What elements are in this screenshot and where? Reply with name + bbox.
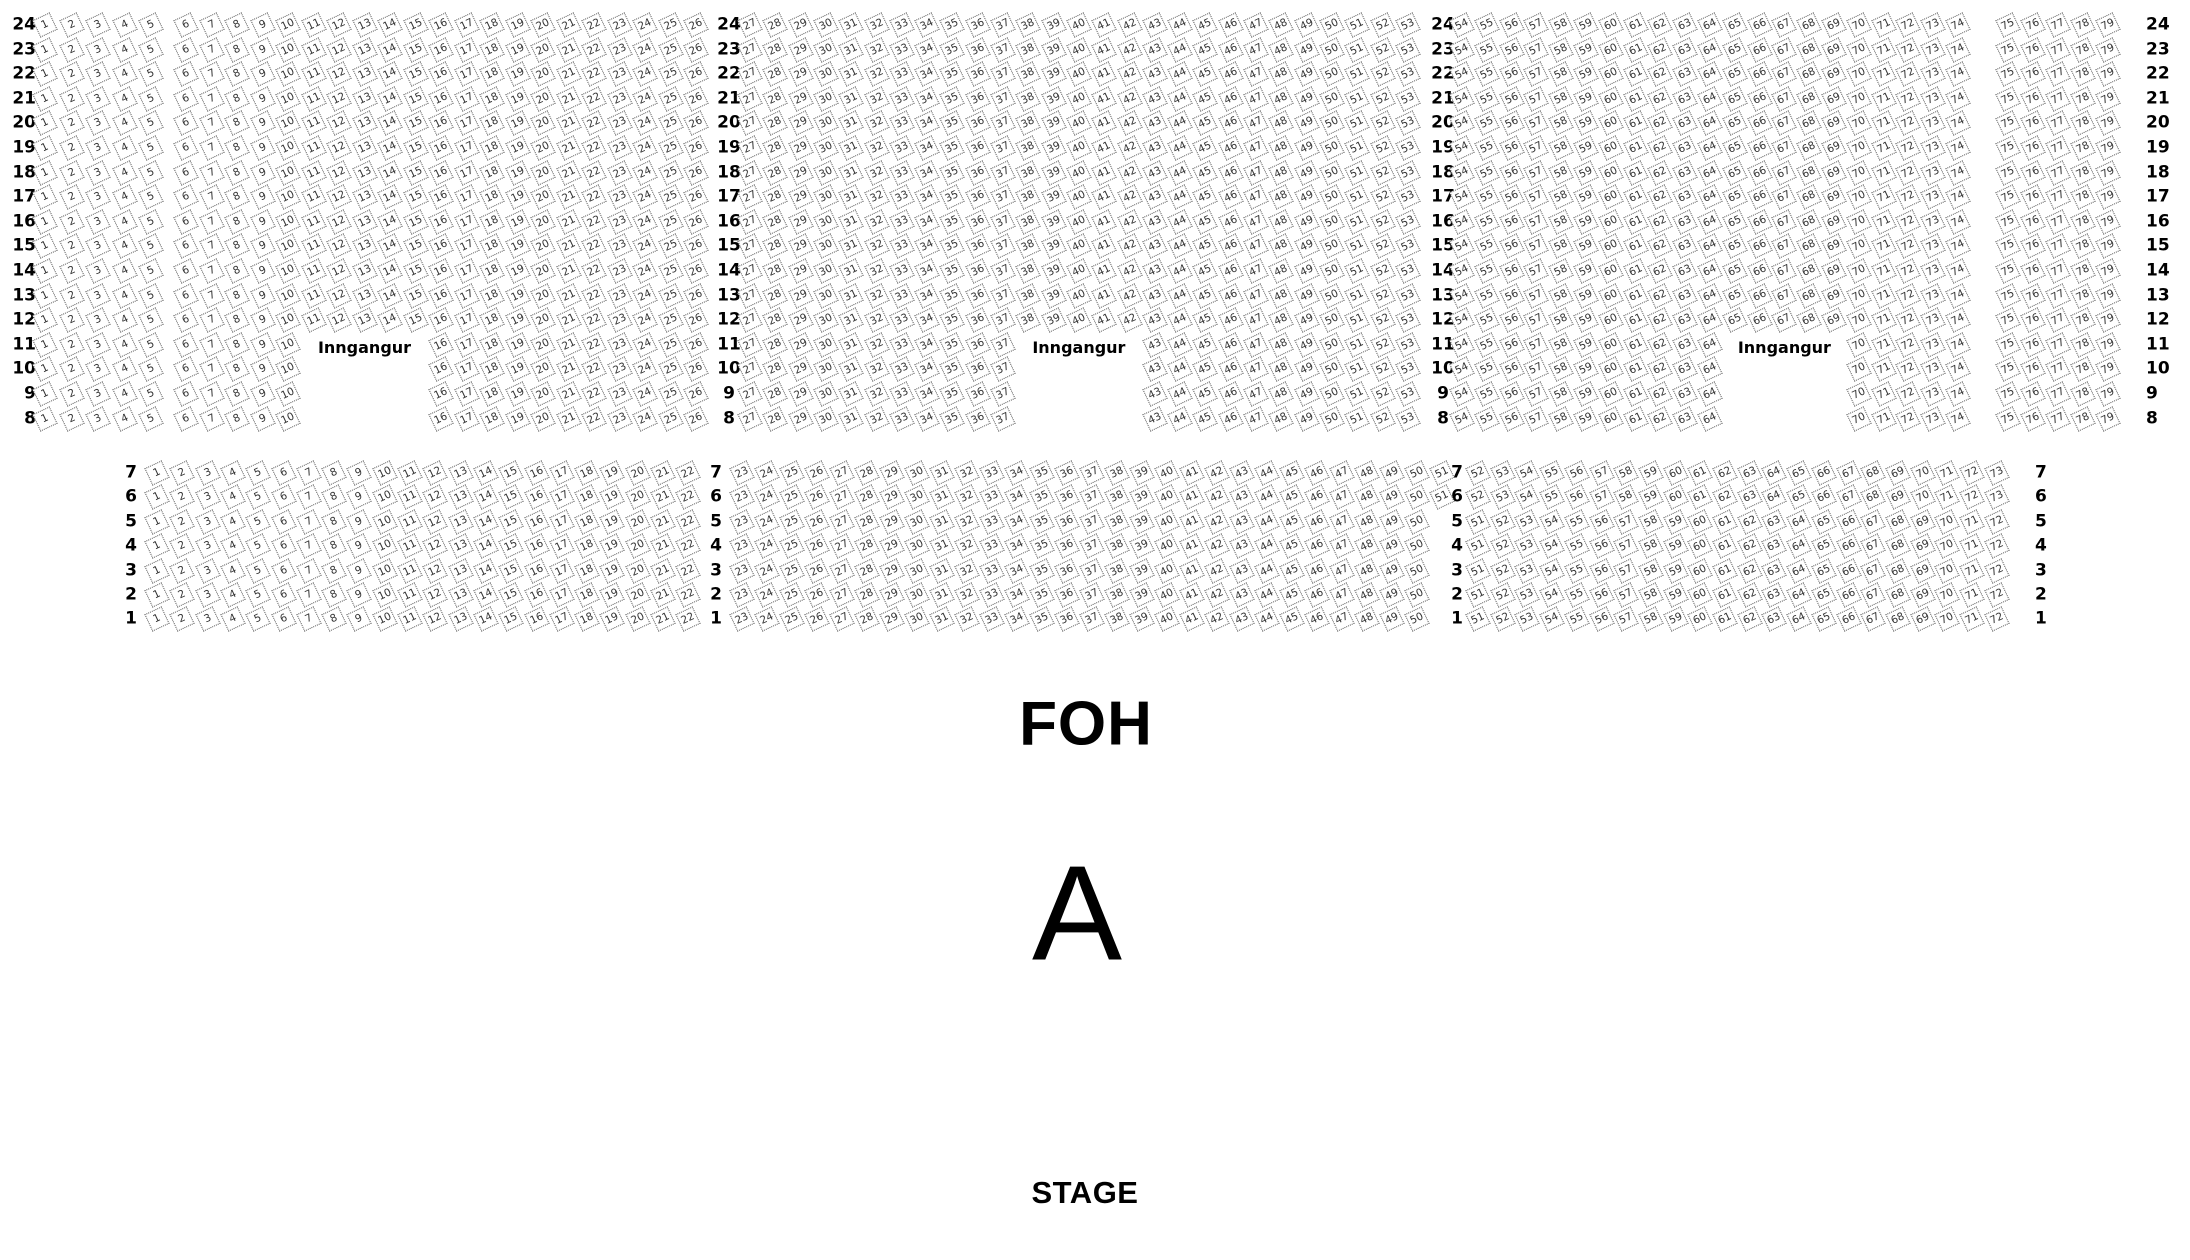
- seat[interactable]: 68: [1797, 135, 1822, 160]
- seat[interactable]: 72: [1896, 308, 1921, 333]
- seat[interactable]: 76: [2020, 234, 2045, 259]
- seat[interactable]: 59: [1573, 37, 1598, 62]
- seat[interactable]: 39: [1041, 12, 1066, 37]
- seat[interactable]: 35: [940, 234, 965, 259]
- seat[interactable]: 15: [403, 37, 428, 62]
- seat[interactable]: 64: [1786, 509, 1811, 534]
- seat[interactable]: 67: [1772, 86, 1797, 111]
- seat[interactable]: 24: [632, 62, 657, 87]
- seat[interactable]: 39: [1041, 62, 1066, 87]
- seat[interactable]: 39: [1041, 160, 1066, 185]
- seat[interactable]: 5: [246, 509, 271, 534]
- seat[interactable]: 47: [1243, 135, 1268, 160]
- seat[interactable]: 49: [1294, 357, 1319, 382]
- seat[interactable]: 73: [1921, 357, 1946, 382]
- seat[interactable]: 2: [59, 258, 84, 283]
- seat[interactable]: 39: [1041, 234, 1066, 259]
- seat[interactable]: 8: [224, 111, 249, 136]
- seat[interactable]: 48: [1269, 406, 1294, 431]
- seat[interactable]: 23: [607, 86, 632, 111]
- seat[interactable]: 25: [658, 37, 683, 62]
- seat[interactable]: 76: [2020, 12, 2045, 37]
- seat[interactable]: 28: [763, 357, 788, 382]
- seat[interactable]: 69: [1821, 62, 1846, 87]
- seat[interactable]: 25: [779, 558, 804, 583]
- seat[interactable]: 24: [632, 86, 657, 111]
- seat[interactable]: 57: [1524, 381, 1549, 406]
- seat[interactable]: 60: [1663, 460, 1688, 485]
- seat[interactable]: 61: [1623, 234, 1648, 259]
- seat[interactable]: 1: [144, 607, 169, 632]
- seat[interactable]: 3: [195, 534, 220, 559]
- seat[interactable]: 6: [173, 12, 198, 37]
- seat[interactable]: 41: [1092, 258, 1117, 283]
- seat[interactable]: 72: [1984, 558, 2009, 583]
- seat[interactable]: 53: [1515, 582, 1540, 607]
- seat[interactable]: 55: [1474, 308, 1499, 333]
- seat[interactable]: 38: [1016, 185, 1041, 210]
- seat[interactable]: 76: [2020, 86, 2045, 111]
- seat[interactable]: 9: [347, 534, 372, 559]
- seat[interactable]: 75: [1995, 258, 2020, 283]
- seat[interactable]: 6: [173, 308, 198, 333]
- seat[interactable]: 34: [914, 62, 939, 87]
- seat[interactable]: 12: [326, 283, 351, 308]
- seat[interactable]: 66: [1836, 607, 1861, 632]
- seat[interactable]: 37: [990, 357, 1015, 382]
- seat[interactable]: 48: [1354, 607, 1379, 632]
- seat[interactable]: 62: [1648, 185, 1673, 210]
- seat[interactable]: 53: [1395, 308, 1420, 333]
- seat[interactable]: 70: [1846, 381, 1871, 406]
- seat[interactable]: 38: [1104, 607, 1129, 632]
- seat[interactable]: 10: [372, 558, 397, 583]
- seat[interactable]: 18: [479, 86, 504, 111]
- seat[interactable]: 53: [1490, 485, 1515, 510]
- seat[interactable]: 52: [1370, 135, 1395, 160]
- seat[interactable]: 55: [1564, 558, 1589, 583]
- seat[interactable]: 61: [1712, 607, 1737, 632]
- seat[interactable]: 29: [788, 62, 813, 87]
- seat[interactable]: 40: [1154, 607, 1179, 632]
- seat[interactable]: 58: [1549, 160, 1574, 185]
- seat[interactable]: 47: [1329, 485, 1354, 510]
- seat[interactable]: 35: [940, 209, 965, 234]
- seat[interactable]: 32: [954, 485, 979, 510]
- seat[interactable]: 8: [321, 534, 346, 559]
- seat[interactable]: 57: [1524, 209, 1549, 234]
- seat[interactable]: 75: [1995, 357, 2020, 382]
- seat[interactable]: 46: [1304, 460, 1329, 485]
- seat[interactable]: 40: [1066, 111, 1091, 136]
- seat[interactable]: 21: [556, 308, 581, 333]
- seat[interactable]: 51: [1465, 509, 1490, 534]
- seat[interactable]: 61: [1623, 37, 1648, 62]
- seat[interactable]: 44: [1254, 460, 1279, 485]
- seat[interactable]: 47: [1243, 209, 1268, 234]
- seat[interactable]: 37: [990, 283, 1015, 308]
- seat[interactable]: 41: [1179, 607, 1204, 632]
- seat[interactable]: 16: [524, 534, 549, 559]
- seat[interactable]: 30: [813, 209, 838, 234]
- seat[interactable]: 7: [296, 534, 321, 559]
- seat[interactable]: 10: [275, 332, 300, 357]
- seat[interactable]: 38: [1104, 582, 1129, 607]
- seat[interactable]: 43: [1229, 460, 1254, 485]
- seat[interactable]: 51: [1345, 258, 1370, 283]
- seat[interactable]: 79: [2095, 234, 2120, 259]
- seat[interactable]: 20: [625, 558, 650, 583]
- seat[interactable]: 14: [377, 135, 402, 160]
- seat[interactable]: 63: [1673, 37, 1698, 62]
- seat[interactable]: 74: [1945, 406, 1970, 431]
- seat[interactable]: 40: [1154, 558, 1179, 583]
- seat[interactable]: 58: [1549, 234, 1574, 259]
- seat[interactable]: 57: [1524, 37, 1549, 62]
- seat[interactable]: 19: [505, 185, 530, 210]
- seat[interactable]: 64: [1697, 62, 1722, 87]
- seat[interactable]: 38: [1104, 509, 1129, 534]
- seat[interactable]: 15: [499, 558, 524, 583]
- seat[interactable]: 60: [1598, 111, 1623, 136]
- seat[interactable]: 38: [1016, 160, 1041, 185]
- seat[interactable]: 37: [1079, 607, 1104, 632]
- seat[interactable]: 31: [929, 509, 954, 534]
- seat[interactable]: 21: [650, 582, 675, 607]
- seat[interactable]: 2: [59, 160, 84, 185]
- seat[interactable]: 34: [914, 37, 939, 62]
- seat[interactable]: 74: [1945, 258, 1970, 283]
- seat[interactable]: 23: [607, 37, 632, 62]
- seat[interactable]: 79: [2095, 111, 2120, 136]
- seat[interactable]: 19: [505, 12, 530, 37]
- seat[interactable]: 41: [1092, 160, 1117, 185]
- seat[interactable]: 28: [763, 37, 788, 62]
- seat[interactable]: 52: [1370, 12, 1395, 37]
- seat[interactable]: 51: [1345, 111, 1370, 136]
- seat[interactable]: 22: [581, 12, 606, 37]
- seat[interactable]: 22: [581, 86, 606, 111]
- seat[interactable]: 64: [1786, 558, 1811, 583]
- seat[interactable]: 2: [59, 12, 84, 37]
- seat[interactable]: 45: [1279, 558, 1304, 583]
- seat[interactable]: 15: [403, 308, 428, 333]
- seat[interactable]: 7: [199, 209, 224, 234]
- seat[interactable]: 56: [1499, 111, 1524, 136]
- seat[interactable]: 7: [296, 582, 321, 607]
- seat[interactable]: 22: [581, 160, 606, 185]
- seat[interactable]: 51: [1345, 234, 1370, 259]
- seat[interactable]: 37: [990, 308, 1015, 333]
- seat[interactable]: 73: [1984, 460, 2009, 485]
- seat[interactable]: 7: [199, 111, 224, 136]
- seat[interactable]: 28: [854, 534, 879, 559]
- seat[interactable]: 44: [1167, 308, 1192, 333]
- seat[interactable]: 8: [321, 485, 346, 510]
- seat[interactable]: 44: [1167, 37, 1192, 62]
- seat[interactable]: 19: [505, 258, 530, 283]
- seat[interactable]: 5: [138, 283, 163, 308]
- seat[interactable]: 7: [199, 37, 224, 62]
- seat[interactable]: 59: [1638, 485, 1663, 510]
- seat[interactable]: 46: [1218, 86, 1243, 111]
- seat[interactable]: 22: [581, 381, 606, 406]
- seat[interactable]: 28: [854, 509, 879, 534]
- seat[interactable]: 53: [1395, 357, 1420, 382]
- seat[interactable]: 50: [1319, 332, 1344, 357]
- seat[interactable]: 46: [1304, 534, 1329, 559]
- seat[interactable]: 48: [1269, 258, 1294, 283]
- seat[interactable]: 25: [658, 283, 683, 308]
- seat[interactable]: 32: [954, 582, 979, 607]
- seat[interactable]: 2: [59, 308, 84, 333]
- seat[interactable]: 63: [1673, 209, 1698, 234]
- seat[interactable]: 79: [2095, 357, 2120, 382]
- seat[interactable]: 44: [1254, 558, 1279, 583]
- seat[interactable]: 63: [1673, 111, 1698, 136]
- seat[interactable]: 59: [1663, 534, 1688, 559]
- seat[interactable]: 38: [1104, 534, 1129, 559]
- seat[interactable]: 5: [138, 160, 163, 185]
- seat[interactable]: 63: [1673, 185, 1698, 210]
- seat[interactable]: 71: [1959, 558, 1984, 583]
- seat[interactable]: 22: [581, 258, 606, 283]
- seat[interactable]: 23: [607, 160, 632, 185]
- seat[interactable]: 49: [1294, 160, 1319, 185]
- seat[interactable]: 42: [1117, 209, 1142, 234]
- seat[interactable]: 3: [85, 12, 110, 37]
- seat[interactable]: 56: [1499, 283, 1524, 308]
- seat[interactable]: 50: [1319, 381, 1344, 406]
- seat[interactable]: 4: [112, 12, 137, 37]
- seat[interactable]: 35: [1029, 558, 1054, 583]
- seat[interactable]: 11: [301, 283, 326, 308]
- seat[interactable]: 43: [1142, 209, 1167, 234]
- seat[interactable]: 41: [1092, 62, 1117, 87]
- seat[interactable]: 62: [1648, 12, 1673, 37]
- seat[interactable]: 65: [1786, 485, 1811, 510]
- seat[interactable]: 13: [448, 485, 473, 510]
- seat[interactable]: 45: [1193, 12, 1218, 37]
- seat[interactable]: 15: [403, 86, 428, 111]
- seat[interactable]: 28: [763, 283, 788, 308]
- seat[interactable]: 4: [220, 485, 245, 510]
- seat[interactable]: 9: [250, 381, 275, 406]
- seat[interactable]: 20: [530, 86, 555, 111]
- seat[interactable]: 17: [454, 160, 479, 185]
- seat[interactable]: 50: [1319, 308, 1344, 333]
- seat[interactable]: 51: [1345, 185, 1370, 210]
- seat[interactable]: 47: [1243, 86, 1268, 111]
- seat[interactable]: 57: [1614, 509, 1639, 534]
- seat[interactable]: 75: [1995, 332, 2020, 357]
- seat[interactable]: 52: [1370, 234, 1395, 259]
- seat[interactable]: 25: [658, 406, 683, 431]
- seat[interactable]: 39: [1129, 558, 1154, 583]
- seat[interactable]: 77: [2045, 185, 2070, 210]
- seat[interactable]: 24: [632, 308, 657, 333]
- seat[interactable]: 60: [1598, 135, 1623, 160]
- seat[interactable]: 36: [965, 62, 990, 87]
- seat[interactable]: 58: [1549, 357, 1574, 382]
- seat[interactable]: 50: [1319, 111, 1344, 136]
- seat[interactable]: 62: [1648, 381, 1673, 406]
- seat[interactable]: 44: [1167, 209, 1192, 234]
- seat[interactable]: 70: [1846, 86, 1871, 111]
- seat[interactable]: 9: [250, 209, 275, 234]
- seat[interactable]: 38: [1016, 234, 1041, 259]
- seat[interactable]: 50: [1319, 135, 1344, 160]
- seat[interactable]: 21: [556, 357, 581, 382]
- seat[interactable]: 38: [1016, 86, 1041, 111]
- seat[interactable]: 62: [1648, 258, 1673, 283]
- seat[interactable]: 10: [275, 234, 300, 259]
- seat[interactable]: 31: [839, 160, 864, 185]
- seat[interactable]: 25: [658, 135, 683, 160]
- seat[interactable]: 76: [2020, 357, 2045, 382]
- seat[interactable]: 53: [1490, 460, 1515, 485]
- seat[interactable]: 29: [788, 258, 813, 283]
- seat[interactable]: 39: [1041, 37, 1066, 62]
- seat[interactable]: 26: [683, 234, 708, 259]
- seat[interactable]: 56: [1499, 209, 1524, 234]
- seat[interactable]: 30: [813, 86, 838, 111]
- seat[interactable]: 26: [804, 509, 829, 534]
- seat[interactable]: 49: [1294, 406, 1319, 431]
- seat[interactable]: 51: [1345, 37, 1370, 62]
- seat[interactable]: 27: [737, 160, 762, 185]
- seat[interactable]: 31: [839, 258, 864, 283]
- seat[interactable]: 25: [779, 607, 804, 632]
- seat[interactable]: 76: [2020, 283, 2045, 308]
- seat[interactable]: 42: [1117, 37, 1142, 62]
- seat[interactable]: 46: [1304, 509, 1329, 534]
- seat[interactable]: 58: [1549, 381, 1574, 406]
- seat[interactable]: 29: [879, 582, 904, 607]
- seat[interactable]: 33: [889, 381, 914, 406]
- seat[interactable]: 48: [1269, 135, 1294, 160]
- seat[interactable]: 58: [1549, 111, 1574, 136]
- seat[interactable]: 24: [754, 485, 779, 510]
- seat[interactable]: 31: [839, 381, 864, 406]
- seat[interactable]: 76: [2020, 332, 2045, 357]
- seat[interactable]: 72: [1896, 62, 1921, 87]
- seat[interactable]: 42: [1117, 308, 1142, 333]
- seat[interactable]: 59: [1573, 406, 1598, 431]
- seat[interactable]: 72: [1896, 258, 1921, 283]
- seat[interactable]: 50: [1319, 62, 1344, 87]
- seat[interactable]: 71: [1871, 135, 1896, 160]
- seat[interactable]: 15: [403, 62, 428, 87]
- seat[interactable]: 6: [173, 37, 198, 62]
- seat[interactable]: 68: [1797, 185, 1822, 210]
- seat[interactable]: 16: [428, 234, 453, 259]
- seat[interactable]: 50: [1404, 509, 1429, 534]
- seat[interactable]: 58: [1549, 37, 1574, 62]
- seat[interactable]: 41: [1179, 485, 1204, 510]
- seat[interactable]: 32: [864, 332, 889, 357]
- seat[interactable]: 15: [403, 209, 428, 234]
- seat[interactable]: 44: [1167, 62, 1192, 87]
- seat[interactable]: 54: [1515, 485, 1540, 510]
- seat[interactable]: 37: [990, 234, 1015, 259]
- seat[interactable]: 74: [1945, 37, 1970, 62]
- seat[interactable]: 20: [530, 308, 555, 333]
- seat[interactable]: 18: [479, 62, 504, 87]
- seat[interactable]: 33: [889, 185, 914, 210]
- seat[interactable]: 70: [1846, 111, 1871, 136]
- seat[interactable]: 15: [403, 283, 428, 308]
- seat[interactable]: 39: [1129, 485, 1154, 510]
- seat[interactable]: 46: [1218, 209, 1243, 234]
- seat[interactable]: 68: [1885, 534, 1910, 559]
- seat[interactable]: 77: [2045, 111, 2070, 136]
- seat[interactable]: 37: [1079, 582, 1104, 607]
- seat[interactable]: 64: [1697, 332, 1722, 357]
- seat[interactable]: 64: [1697, 86, 1722, 111]
- seat[interactable]: 26: [683, 160, 708, 185]
- seat[interactable]: 62: [1648, 86, 1673, 111]
- seat[interactable]: 37: [1079, 509, 1104, 534]
- seat[interactable]: 54: [1539, 509, 1564, 534]
- seat[interactable]: 69: [1821, 234, 1846, 259]
- seat[interactable]: 40: [1066, 12, 1091, 37]
- seat[interactable]: 58: [1638, 582, 1663, 607]
- seat[interactable]: 28: [763, 185, 788, 210]
- seat[interactable]: 19: [600, 558, 625, 583]
- seat[interactable]: 33: [979, 485, 1004, 510]
- seat[interactable]: 5: [138, 135, 163, 160]
- seat[interactable]: 7: [296, 509, 321, 534]
- seat[interactable]: 78: [2070, 209, 2095, 234]
- seat[interactable]: 4: [220, 509, 245, 534]
- seat[interactable]: 39: [1041, 209, 1066, 234]
- seat[interactable]: 19: [505, 234, 530, 259]
- seat[interactable]: 76: [2020, 111, 2045, 136]
- seat[interactable]: 52: [1465, 485, 1490, 510]
- seat[interactable]: 26: [683, 332, 708, 357]
- seat[interactable]: 46: [1218, 381, 1243, 406]
- seat[interactable]: 42: [1117, 258, 1142, 283]
- seat[interactable]: 77: [2045, 406, 2070, 431]
- seat[interactable]: 44: [1254, 509, 1279, 534]
- seat[interactable]: 53: [1395, 209, 1420, 234]
- seat[interactable]: 73: [1921, 308, 1946, 333]
- seat[interactable]: 29: [788, 209, 813, 234]
- seat[interactable]: 60: [1688, 582, 1713, 607]
- seat[interactable]: 16: [428, 12, 453, 37]
- seat[interactable]: 64: [1762, 460, 1787, 485]
- seat[interactable]: 70: [1846, 406, 1871, 431]
- seat[interactable]: 29: [788, 381, 813, 406]
- seat[interactable]: 22: [581, 283, 606, 308]
- seat[interactable]: 21: [556, 37, 581, 62]
- seat[interactable]: 47: [1329, 460, 1354, 485]
- seat[interactable]: 7: [199, 283, 224, 308]
- seat[interactable]: 33: [979, 460, 1004, 485]
- seat[interactable]: 1: [144, 485, 169, 510]
- seat[interactable]: 60: [1688, 509, 1713, 534]
- seat[interactable]: 10: [275, 62, 300, 87]
- seat[interactable]: 66: [1747, 234, 1772, 259]
- seat[interactable]: 67: [1772, 111, 1797, 136]
- seat[interactable]: 30: [813, 406, 838, 431]
- seat[interactable]: 21: [556, 234, 581, 259]
- seat[interactable]: 12: [423, 485, 448, 510]
- seat[interactable]: 18: [479, 258, 504, 283]
- seat[interactable]: 4: [220, 558, 245, 583]
- seat[interactable]: 35: [940, 62, 965, 87]
